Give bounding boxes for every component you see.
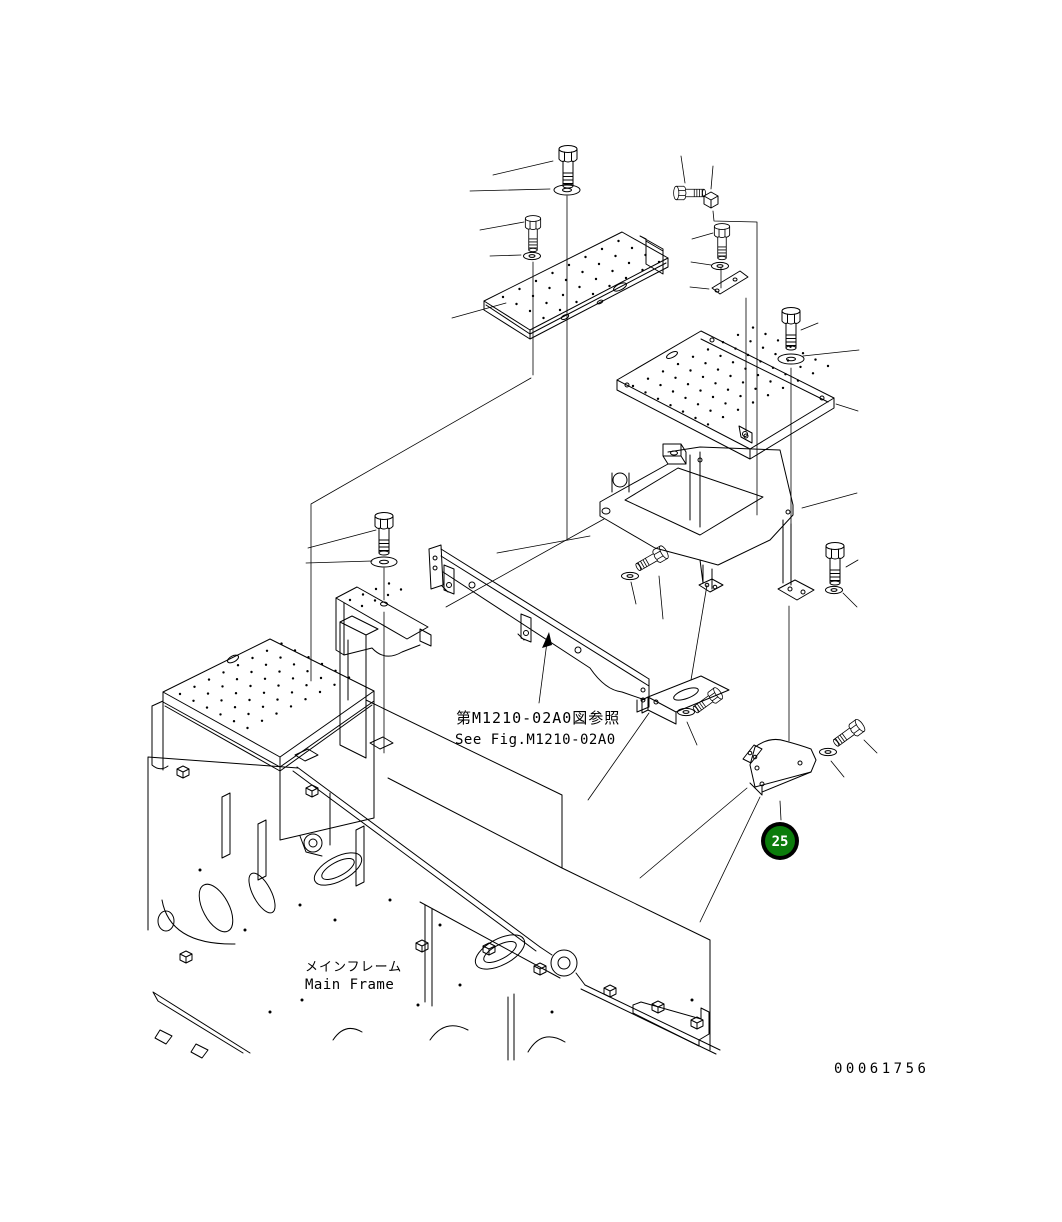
- washer-j: [826, 586, 843, 593]
- cross-member: [429, 545, 649, 712]
- equipment-box: [152, 616, 393, 845]
- exploded-parts-diagram: 25 第M1210-02A0図参照 See Fig.M1210-02A0 メイン…: [0, 0, 1062, 1222]
- hex-bolt-g: [782, 308, 800, 351]
- hex-bolt-k: [633, 545, 670, 574]
- mounting-bracket: [642, 676, 729, 724]
- main-frame-label-en: Main Frame: [305, 977, 394, 993]
- hex-bolt-e: [714, 224, 729, 260]
- main-frame-label-jp: メインフレーム: [305, 960, 402, 975]
- frame-holes: [199, 869, 694, 1014]
- washer-m: [820, 748, 837, 755]
- hex-bolt-a: [559, 146, 577, 189]
- spacer-strip-f: [712, 271, 748, 294]
- hex-bolt-h: [375, 513, 393, 556]
- washer-e: [712, 262, 729, 269]
- callout-balloon-25[interactable]: 25: [761, 822, 799, 860]
- washer-g: [778, 354, 804, 364]
- walkway-plate-1: [484, 232, 668, 339]
- hex-bolt-n: [831, 718, 867, 750]
- hex-bolt-c: [674, 186, 706, 200]
- reference-note-jp: 第M1210-02A0図参照: [456, 709, 620, 727]
- step-bracket-25: [743, 739, 816, 795]
- washer-l: [678, 708, 695, 715]
- main-frame: [148, 700, 720, 1060]
- installed-walkway-plate: [163, 639, 374, 771]
- washer-a: [554, 185, 580, 195]
- square-nut-d: [704, 192, 718, 208]
- balloon-number: 25: [772, 834, 789, 850]
- reference-note-en: See Fig.M1210-02A0: [455, 732, 616, 748]
- hex-bolt-b: [525, 216, 540, 252]
- shelf-bracket: [336, 582, 431, 656]
- projection-lines: [311, 196, 791, 753]
- hex-bolt-l: [691, 686, 725, 716]
- washer-b: [524, 252, 541, 259]
- washer-k: [622, 572, 639, 579]
- hex-bolt-j: [826, 543, 844, 586]
- drawing-number: 00061756: [834, 1061, 929, 1077]
- walkway-plate-2: [617, 326, 834, 459]
- reference-arrow: [539, 632, 552, 703]
- washer-h: [371, 557, 397, 567]
